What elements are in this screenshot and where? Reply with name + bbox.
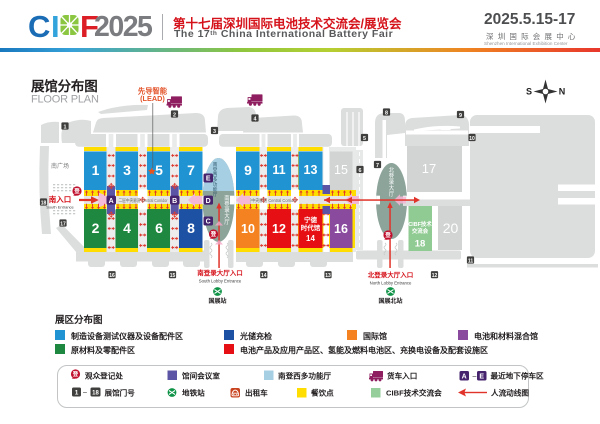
- svg-text:观众登记处: 观众登记处: [85, 371, 123, 381]
- svg-text:地铁站: 地铁站: [182, 388, 205, 398]
- svg-text:CIBF技术交流会: CIBF技术交流会: [386, 388, 442, 398]
- svg-text:E: E: [479, 374, 484, 381]
- svg-text:展馆门号: 展馆门号: [105, 388, 136, 398]
- svg-text:南登西多功能厅: 南登西多功能厅: [278, 371, 332, 381]
- svg-text:18: 18: [92, 391, 99, 397]
- svg-text:货车入口: 货车入口: [386, 371, 417, 381]
- svg-text:A: A: [462, 374, 467, 381]
- svg-text:出租车: 出租车: [245, 388, 268, 398]
- svg-text:餐饮点: 餐饮点: [310, 388, 334, 398]
- svg-text:–: –: [83, 390, 87, 397]
- svg-text:馆间会议室: 馆间会议室: [182, 371, 220, 381]
- svg-text:人流动线图: 人流动线图: [490, 388, 529, 398]
- svg-text:–: –: [473, 373, 477, 380]
- svg-text:1: 1: [75, 390, 79, 397]
- svg-text:最近地下停车区: 最近地下停车区: [491, 371, 545, 381]
